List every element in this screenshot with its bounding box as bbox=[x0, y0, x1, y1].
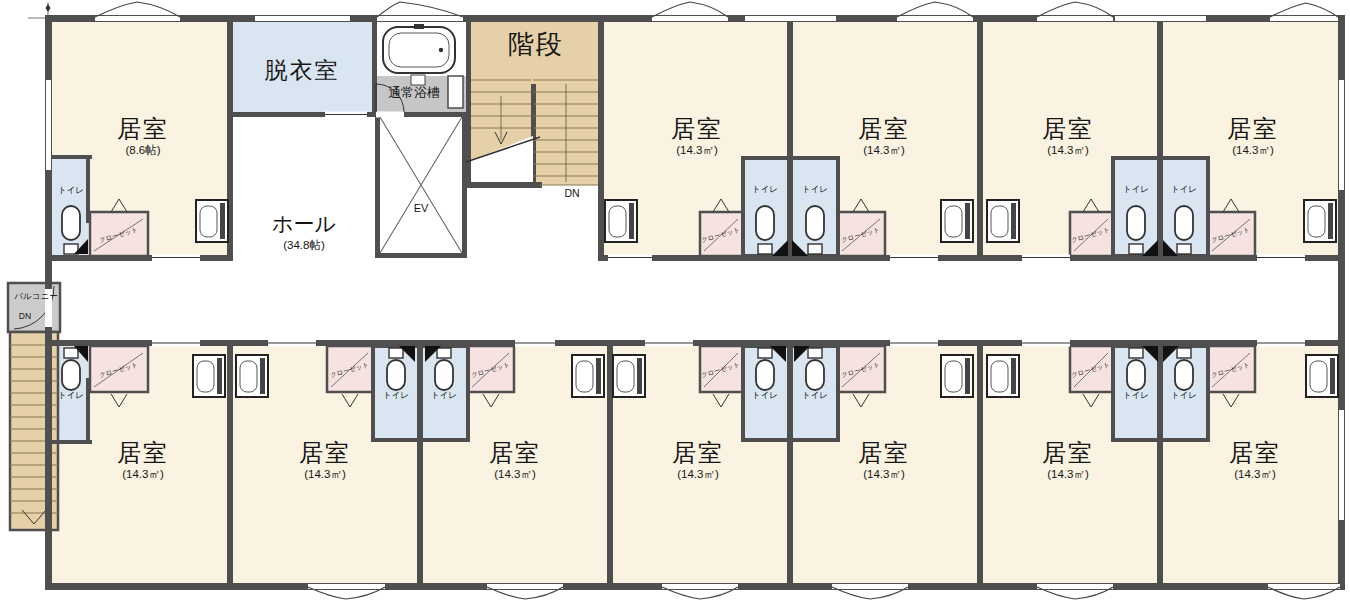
stairs-dn-label: DN bbox=[564, 187, 579, 199]
room-area: (14.3㎡) bbox=[863, 468, 905, 480]
room-area: (14.3㎡) bbox=[304, 468, 346, 480]
washbasin bbox=[987, 355, 1019, 397]
washbasin bbox=[987, 200, 1019, 242]
hall-label: ホール bbox=[272, 212, 336, 235]
bath-counter bbox=[448, 76, 463, 108]
toilet-fixture bbox=[1175, 348, 1193, 390]
washbasin bbox=[196, 200, 228, 242]
balcony-exterior-stairs bbox=[8, 283, 60, 530]
room-area: (14.3㎡) bbox=[863, 144, 905, 156]
toilet-label: トイレ bbox=[1171, 390, 1197, 400]
room-area: (14.3㎡) bbox=[1047, 468, 1089, 480]
room-area: (8.6帖) bbox=[125, 144, 160, 156]
room-fills bbox=[52, 22, 1338, 583]
room-area: (14.3㎡) bbox=[676, 144, 718, 156]
washbasin bbox=[572, 355, 604, 397]
toilet-label: トイレ bbox=[431, 390, 457, 400]
room-label: 居室 bbox=[858, 115, 910, 142]
toilet-fixture bbox=[435, 348, 453, 390]
toilet-label: トイレ bbox=[1123, 390, 1149, 400]
bath-label: 通常浴槽 bbox=[388, 85, 440, 100]
toilet-label: トイレ bbox=[752, 184, 778, 194]
balcony-label: バルコニー bbox=[13, 291, 57, 301]
room-area: (14.3㎡) bbox=[1232, 144, 1274, 156]
room-label: 居室 bbox=[858, 439, 910, 466]
toilet-fixture bbox=[1127, 348, 1145, 390]
washbasin bbox=[613, 355, 645, 397]
toilet-label: トイレ bbox=[383, 390, 409, 400]
toilet-fixture bbox=[62, 206, 80, 254]
floor-plan: 居室 (8.6帖) 居室 (14.3㎡) 居室 (14.3㎡) 居室 (14.3… bbox=[0, 0, 1350, 601]
room-label: 居室 bbox=[1229, 439, 1281, 466]
room-label: 居室 bbox=[1227, 115, 1279, 142]
toilet-fixture bbox=[756, 348, 774, 390]
room-area: (14.3㎡) bbox=[494, 468, 536, 480]
toilet-label: トイレ bbox=[58, 185, 84, 195]
hall-area: (34.8帖) bbox=[283, 239, 325, 251]
toilet-fixture bbox=[62, 348, 80, 390]
room-label: 居室 bbox=[1042, 115, 1094, 142]
toilet-label: トイレ bbox=[58, 390, 84, 400]
room-area: (14.3㎡) bbox=[1047, 144, 1089, 156]
room-label: 居室 bbox=[117, 115, 169, 142]
floor-plan-canvas: 居室 (8.6帖) 居室 (14.3㎡) 居室 (14.3㎡) 居室 (14.3… bbox=[0, 0, 1350, 601]
washbasin bbox=[1304, 200, 1336, 242]
balcony-dn-label: DN bbox=[19, 311, 31, 321]
washbasin bbox=[605, 200, 637, 242]
toilet-fixture bbox=[806, 348, 824, 390]
toilet-fixture bbox=[387, 348, 405, 390]
room-label: 居室 bbox=[299, 439, 351, 466]
washbasin bbox=[1306, 355, 1338, 397]
toilet-label: トイレ bbox=[1171, 184, 1197, 194]
room-area: (14.3㎡) bbox=[122, 468, 164, 480]
room-label: 居室 bbox=[489, 439, 541, 466]
toilet-fixture bbox=[806, 206, 824, 254]
toilet-label: トイレ bbox=[1123, 184, 1149, 194]
room-area: (14.3㎡) bbox=[1234, 468, 1276, 480]
toilet-fixture bbox=[756, 206, 774, 254]
elevator-label: EV bbox=[414, 202, 429, 214]
washbasin bbox=[236, 355, 268, 397]
dressing-room-label: 脱衣室 bbox=[265, 57, 340, 83]
toilet-fixture bbox=[1127, 206, 1145, 254]
washbasin bbox=[941, 200, 973, 242]
room-label: 居室 bbox=[671, 115, 723, 142]
toilet-fixture bbox=[1175, 206, 1193, 254]
toilet-label: トイレ bbox=[752, 390, 778, 400]
room-label: 居室 bbox=[1042, 439, 1094, 466]
stairs-label: 階段 bbox=[508, 29, 564, 59]
washbasin bbox=[941, 355, 973, 397]
room-label: 居室 bbox=[672, 439, 724, 466]
toilet-label: トイレ bbox=[802, 184, 828, 194]
toilet-label: トイレ bbox=[802, 390, 828, 400]
washbasin bbox=[193, 355, 225, 397]
room-label: 居室 bbox=[117, 439, 169, 466]
room-area: (14.3㎡) bbox=[677, 468, 719, 480]
